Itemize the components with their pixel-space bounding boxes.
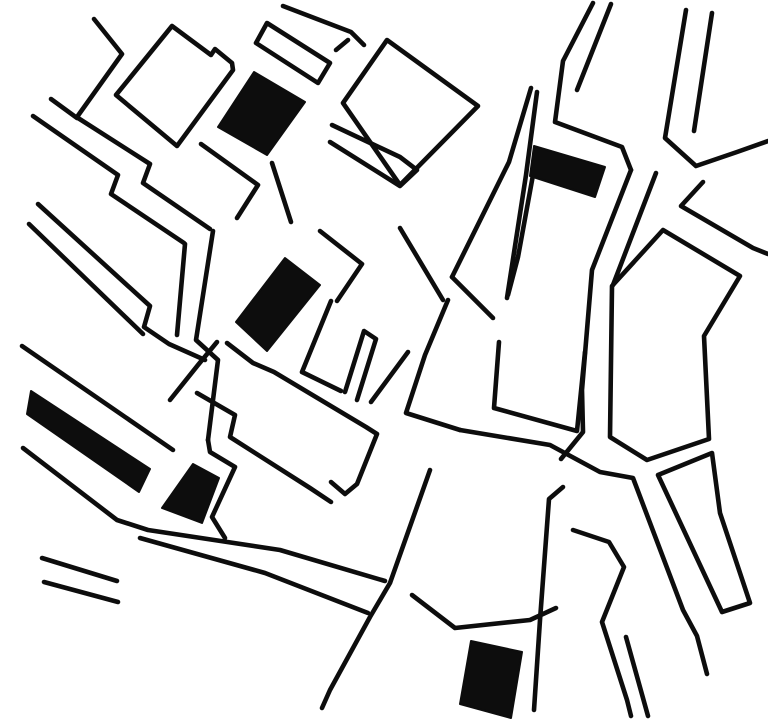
street-line: [44, 582, 118, 602]
street-line: [302, 301, 341, 391]
street-line: [573, 530, 631, 716]
street-line: [322, 470, 430, 708]
street-line: [494, 342, 585, 431]
street-line: [170, 342, 217, 400]
street-line: [460, 430, 707, 674]
street-line: [577, 4, 611, 90]
street-line: [29, 224, 143, 334]
street-line: [555, 3, 631, 170]
street-line: [78, 118, 210, 229]
building-1: [218, 72, 305, 155]
street-line: [51, 99, 77, 118]
city-map-svg: [0, 0, 768, 725]
street-line: [508, 175, 533, 295]
street-line: [140, 538, 368, 613]
block-east-large: [610, 230, 740, 460]
street-line: [201, 144, 258, 218]
street-line: [77, 19, 122, 117]
street-line: [452, 277, 493, 318]
street-line: [272, 163, 291, 222]
street-line: [371, 352, 408, 402]
street-line: [406, 300, 460, 430]
street-line: [320, 231, 362, 301]
building-2: [530, 146, 605, 197]
street-line: [694, 13, 712, 131]
building-5: [162, 464, 219, 523]
street-line: [534, 487, 563, 710]
street-line: [330, 125, 417, 186]
street-line: [177, 244, 185, 335]
street-line: [561, 170, 631, 459]
block-topleft-square: [116, 26, 233, 146]
street-line: [345, 331, 376, 400]
street-line: [681, 182, 768, 254]
street-line: [613, 173, 656, 285]
street-line: [665, 10, 768, 166]
street-line: [196, 231, 218, 440]
block-east-banana: [658, 453, 750, 612]
building-3: [236, 258, 320, 351]
block-strip-above-b1: [256, 23, 330, 83]
street-line: [42, 558, 117, 581]
building-4: [27, 391, 150, 492]
street-line: [336, 40, 348, 50]
street-line: [400, 228, 443, 300]
street-line: [412, 595, 556, 628]
city-map: [0, 0, 768, 725]
building-6: [460, 641, 522, 718]
